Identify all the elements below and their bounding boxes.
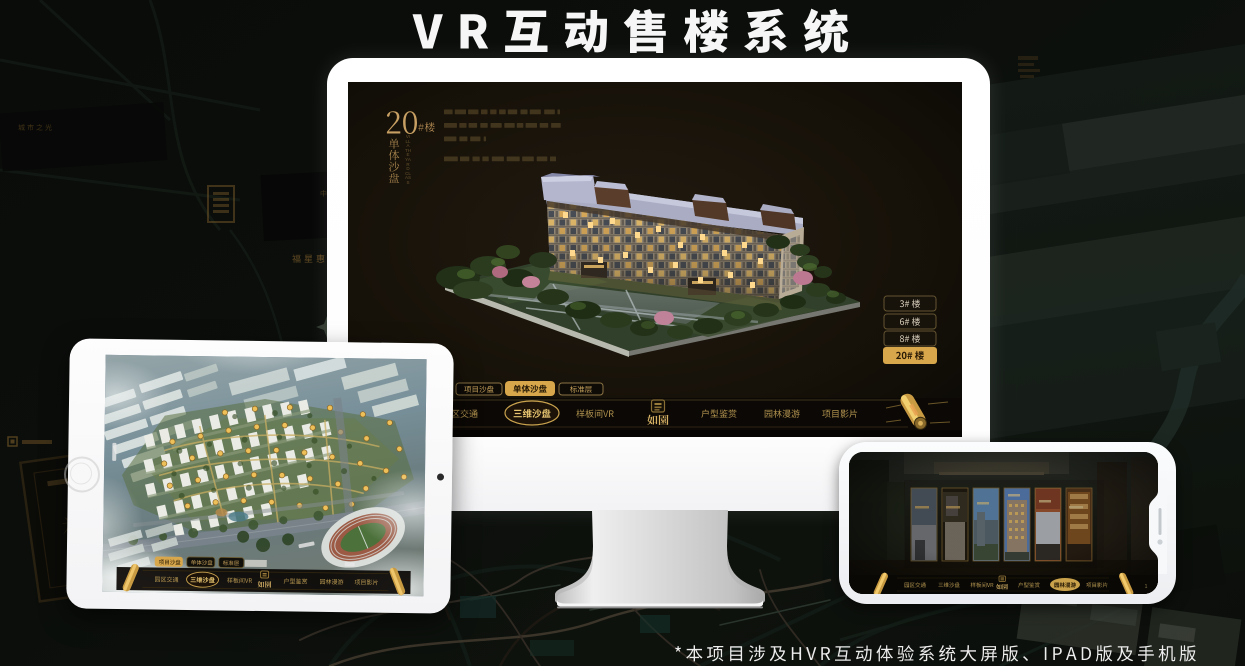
svg-text:1: 1 (1145, 584, 1148, 590)
